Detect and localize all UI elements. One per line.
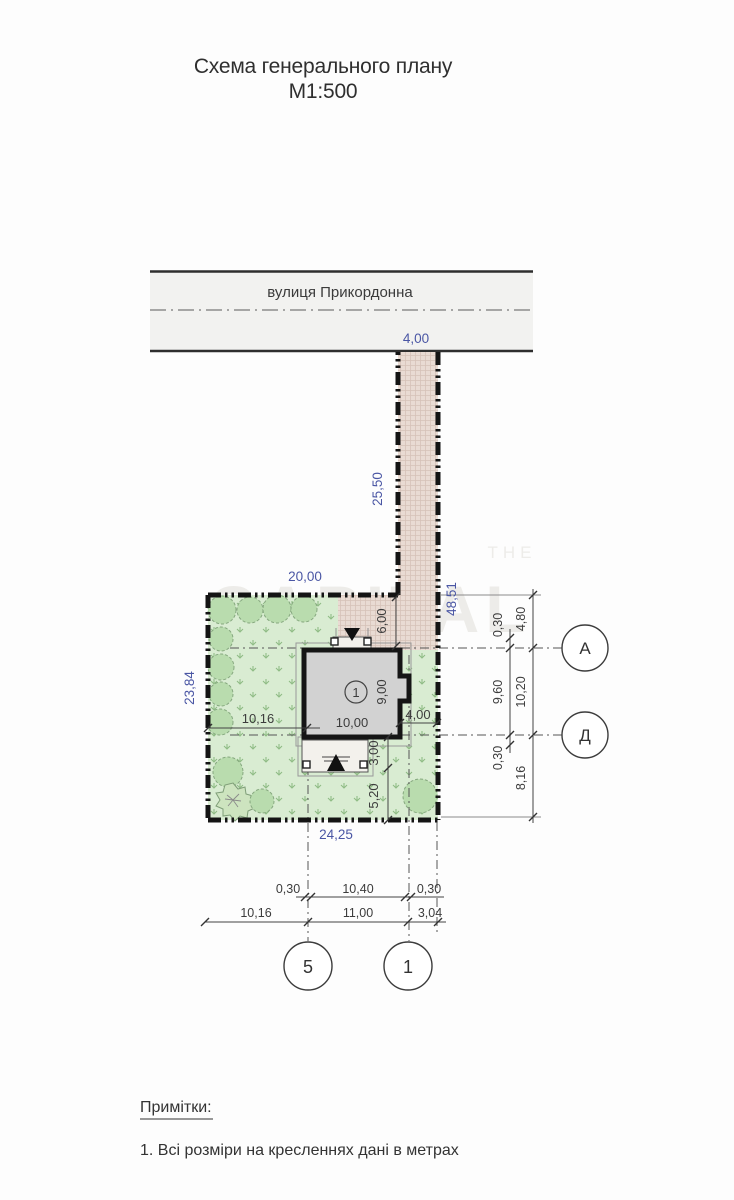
notes-heading: Примітки: xyxy=(140,1099,212,1116)
tree xyxy=(291,596,317,622)
dim-driveway-width: 4,00 xyxy=(403,331,429,346)
dim-wall-1: 0,30 xyxy=(417,882,441,896)
axis-label-d: Д xyxy=(579,726,591,745)
dim-plot-length-left: 23,84 xyxy=(182,671,197,705)
dim-terrace-to-boundary: 5,20 xyxy=(366,783,381,808)
dim-boundary-right: 48,51 xyxy=(444,582,459,616)
page-scale: М1:500 xyxy=(289,80,358,103)
dim-to-axis-a: 4,80 xyxy=(514,607,528,631)
dim-bottom-offset-left: 10,16 xyxy=(240,906,271,920)
tree xyxy=(403,779,437,813)
tree xyxy=(209,627,233,651)
street-name-label: вулиця Прикордонна xyxy=(267,284,413,301)
dim-terrace-depth: 3,00 xyxy=(366,740,381,765)
dim-wall-a: 0,30 xyxy=(491,613,505,637)
porch-column xyxy=(364,638,371,645)
tree xyxy=(263,595,291,623)
dim-house-offset-right: 4,00 xyxy=(405,707,430,722)
street-surface xyxy=(150,271,533,351)
house-number-label: 1 xyxy=(352,685,359,700)
driveway xyxy=(398,352,438,595)
dim-plot-width-top: 20,00 xyxy=(288,569,322,584)
terrace-column xyxy=(303,761,310,768)
dim-outer-span: 10,20 xyxy=(514,676,528,707)
tree xyxy=(207,709,233,735)
dim-house-depth: 9,00 xyxy=(374,679,389,704)
watermark-top-text: THE xyxy=(488,543,537,562)
tree xyxy=(250,789,274,813)
tree xyxy=(237,597,263,623)
dim-plot-width-bottom: 24,25 xyxy=(319,827,353,842)
dim-to-boundary: 8,16 xyxy=(514,766,528,790)
dim-inner-span: 9,60 xyxy=(491,680,505,704)
dim-wall-5: 0,30 xyxy=(276,882,300,896)
dim-house-offset-left: 10,16 xyxy=(242,711,275,726)
site-plan-drawing: Схема генерального плану М1:500 вулиця П… xyxy=(0,0,734,1200)
dim-axes-span: 11,00 xyxy=(343,906,373,920)
bottom-dimension-chain: 0,30 10,40 0,30 10,16 11,00 3,04 xyxy=(240,882,442,920)
dim-bottom-offset-right: 3,04 xyxy=(418,906,442,920)
dim-driveway-length: 25,50 xyxy=(370,472,385,506)
dim-wall-d: 0,30 xyxy=(491,746,505,770)
dim-bottom-inner-span: 10,40 xyxy=(342,882,373,896)
tree xyxy=(213,757,243,787)
tree xyxy=(208,654,234,680)
page-title: Схема генерального плану xyxy=(194,55,453,78)
street: вулиця Прикордонна xyxy=(150,271,533,351)
notes: Примітки: 1. Всі розміри на кресленнях д… xyxy=(140,1099,459,1159)
axis-label-5: 5 xyxy=(303,957,313,977)
porch-column xyxy=(331,638,338,645)
dim-path-depth: 6,00 xyxy=(374,608,389,633)
site-plan-page: Схема генерального плану М1:500 вулиця П… xyxy=(0,0,734,1200)
tree xyxy=(209,682,233,706)
axis-label-1: 1 xyxy=(403,957,413,977)
dim-house-width: 10,00 xyxy=(336,715,369,730)
notes-item-1: 1. Всі розміри на кресленнях дані в метр… xyxy=(140,1142,459,1159)
axis-label-a: А xyxy=(579,639,591,658)
tree xyxy=(208,596,236,624)
